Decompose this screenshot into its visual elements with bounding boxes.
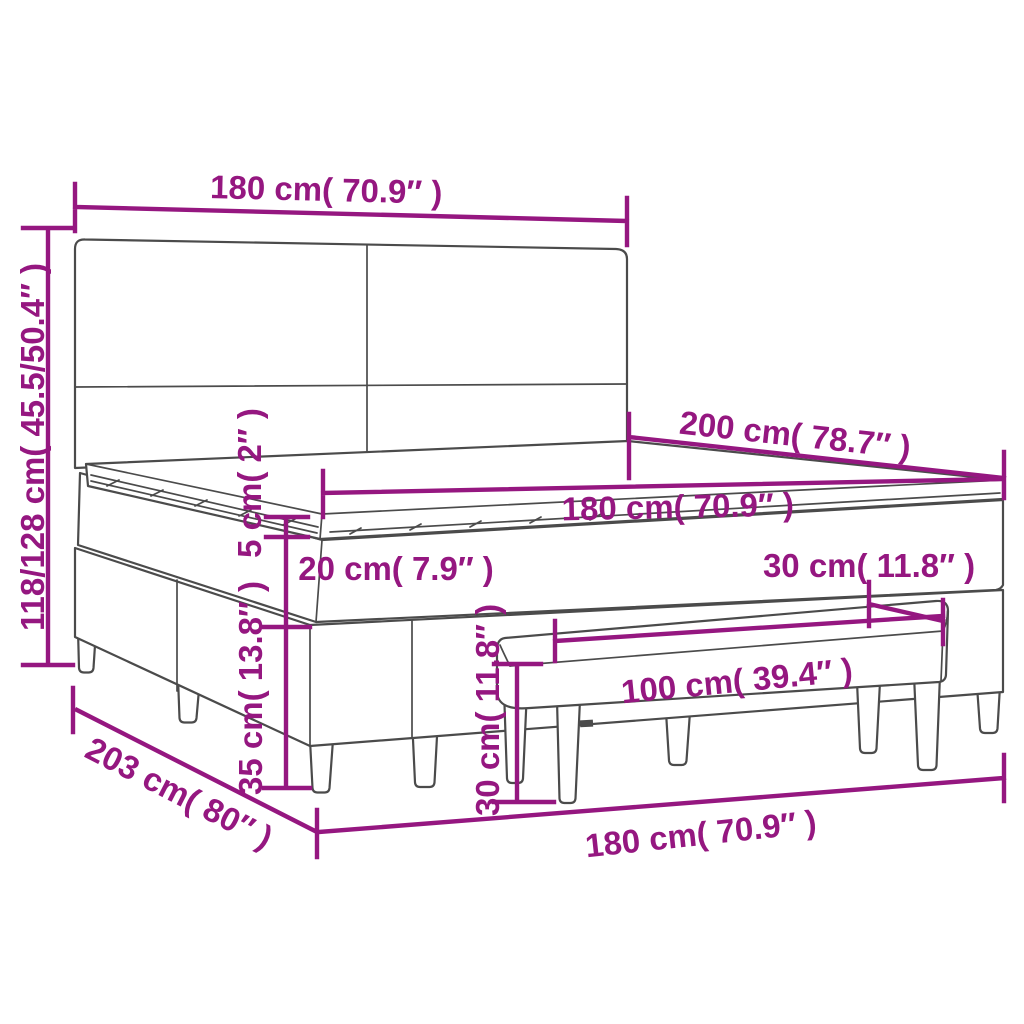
bench-leg-back-right bbox=[857, 682, 880, 753]
dim-label-bench-depth: 30 cm( 11.8″ ) bbox=[763, 547, 975, 584]
dim-label-base-height: 35 cm( 13.8″ ) bbox=[232, 581, 269, 795]
bed-leg-under-bench bbox=[666, 712, 690, 765]
bed-leg-front-corner bbox=[310, 740, 333, 793]
dim-headboard-width: 180 cm( 70.9″ ) bbox=[75, 168, 627, 245]
dim-label-topper-thickness: 5 cm( 2″ ) bbox=[231, 408, 268, 558]
dim-label-mattress-thickness: 20 cm( 7.9″ ) bbox=[298, 550, 494, 587]
base-label-tag bbox=[580, 720, 593, 728]
bed bbox=[75, 239, 1003, 803]
dim-label-mattress-width: 180 cm( 70.9″ ) bbox=[561, 486, 794, 528]
dim-label-bench-height: 30 cm( 11.8″ ) bbox=[469, 604, 506, 816]
headboard bbox=[75, 239, 627, 468]
bench-leg-front-left bbox=[557, 700, 580, 803]
dim-label-frame-floor-width: 180 cm( 70.9″ ) bbox=[583, 803, 818, 864]
dim-overall-height: 118/128 cm( 45.5/50.4″ ) bbox=[14, 228, 73, 665]
bench-leg-front-right bbox=[914, 675, 940, 770]
diagram-page: 180 cm( 70.9″ ) 118/128 cm( 45.5/50.4″ )… bbox=[0, 0, 1024, 1024]
dim-label-overall-height: 118/128 cm( 45.5/50.4″ ) bbox=[14, 263, 51, 631]
bed-dimension-diagram: 180 cm( 70.9″ ) 118/128 cm( 45.5/50.4″ )… bbox=[0, 0, 1024, 1024]
dim-label-headboard-width: 180 cm( 70.9″ ) bbox=[210, 168, 443, 211]
